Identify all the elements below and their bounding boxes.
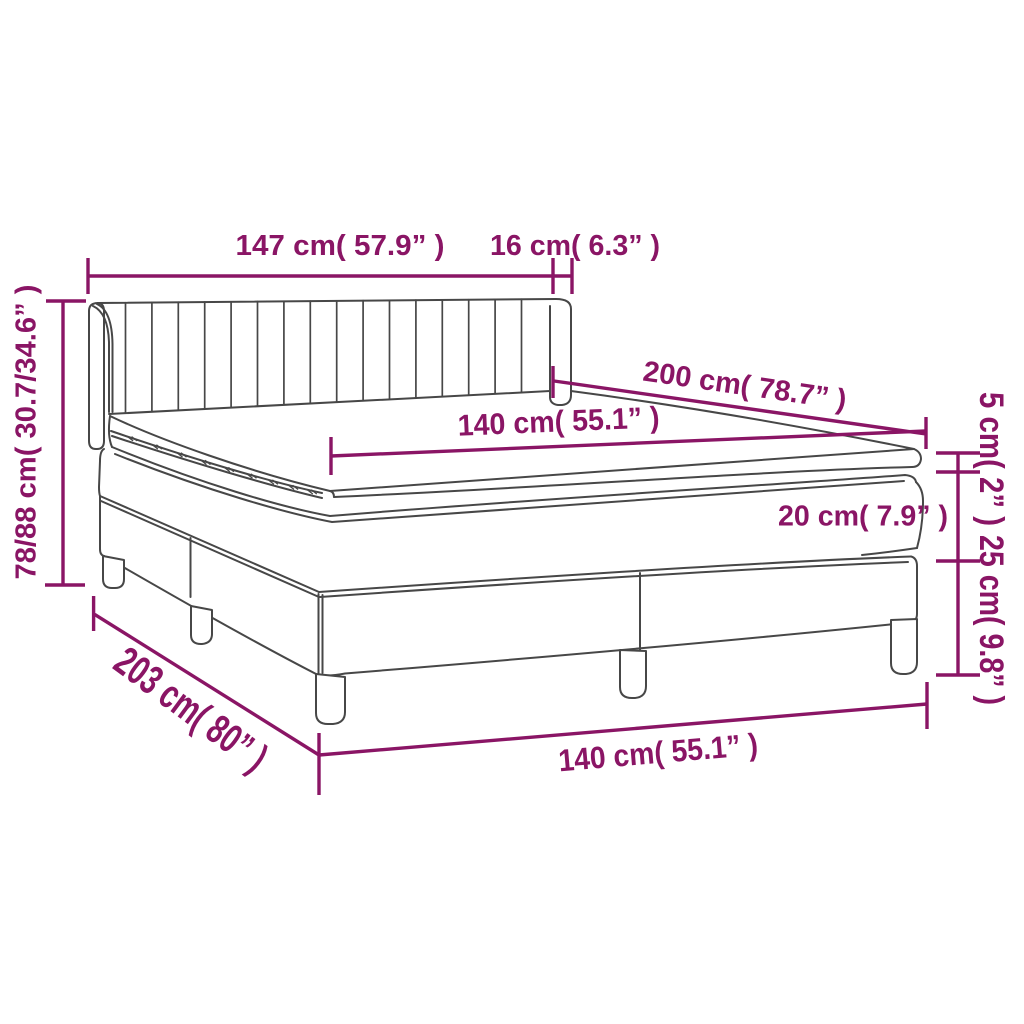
svg-text:147 cm( 57.9” ): 147 cm( 57.9” ) [236,230,445,262]
svg-text:25 cm( 9.8” ): 25 cm( 9.8” ) [972,535,1010,705]
svg-text:20 cm( 7.9” ): 20 cm( 7.9” ) [778,501,948,533]
svg-text:16 cm( 6.3” ): 16 cm( 6.3” ) [490,230,660,262]
svg-text:78/88 cm( 30.7/34.6” ): 78/88 cm( 30.7/34.6” ) [11,285,43,580]
svg-text:5 cm( 2” ): 5 cm( 2” ) [972,392,1010,526]
